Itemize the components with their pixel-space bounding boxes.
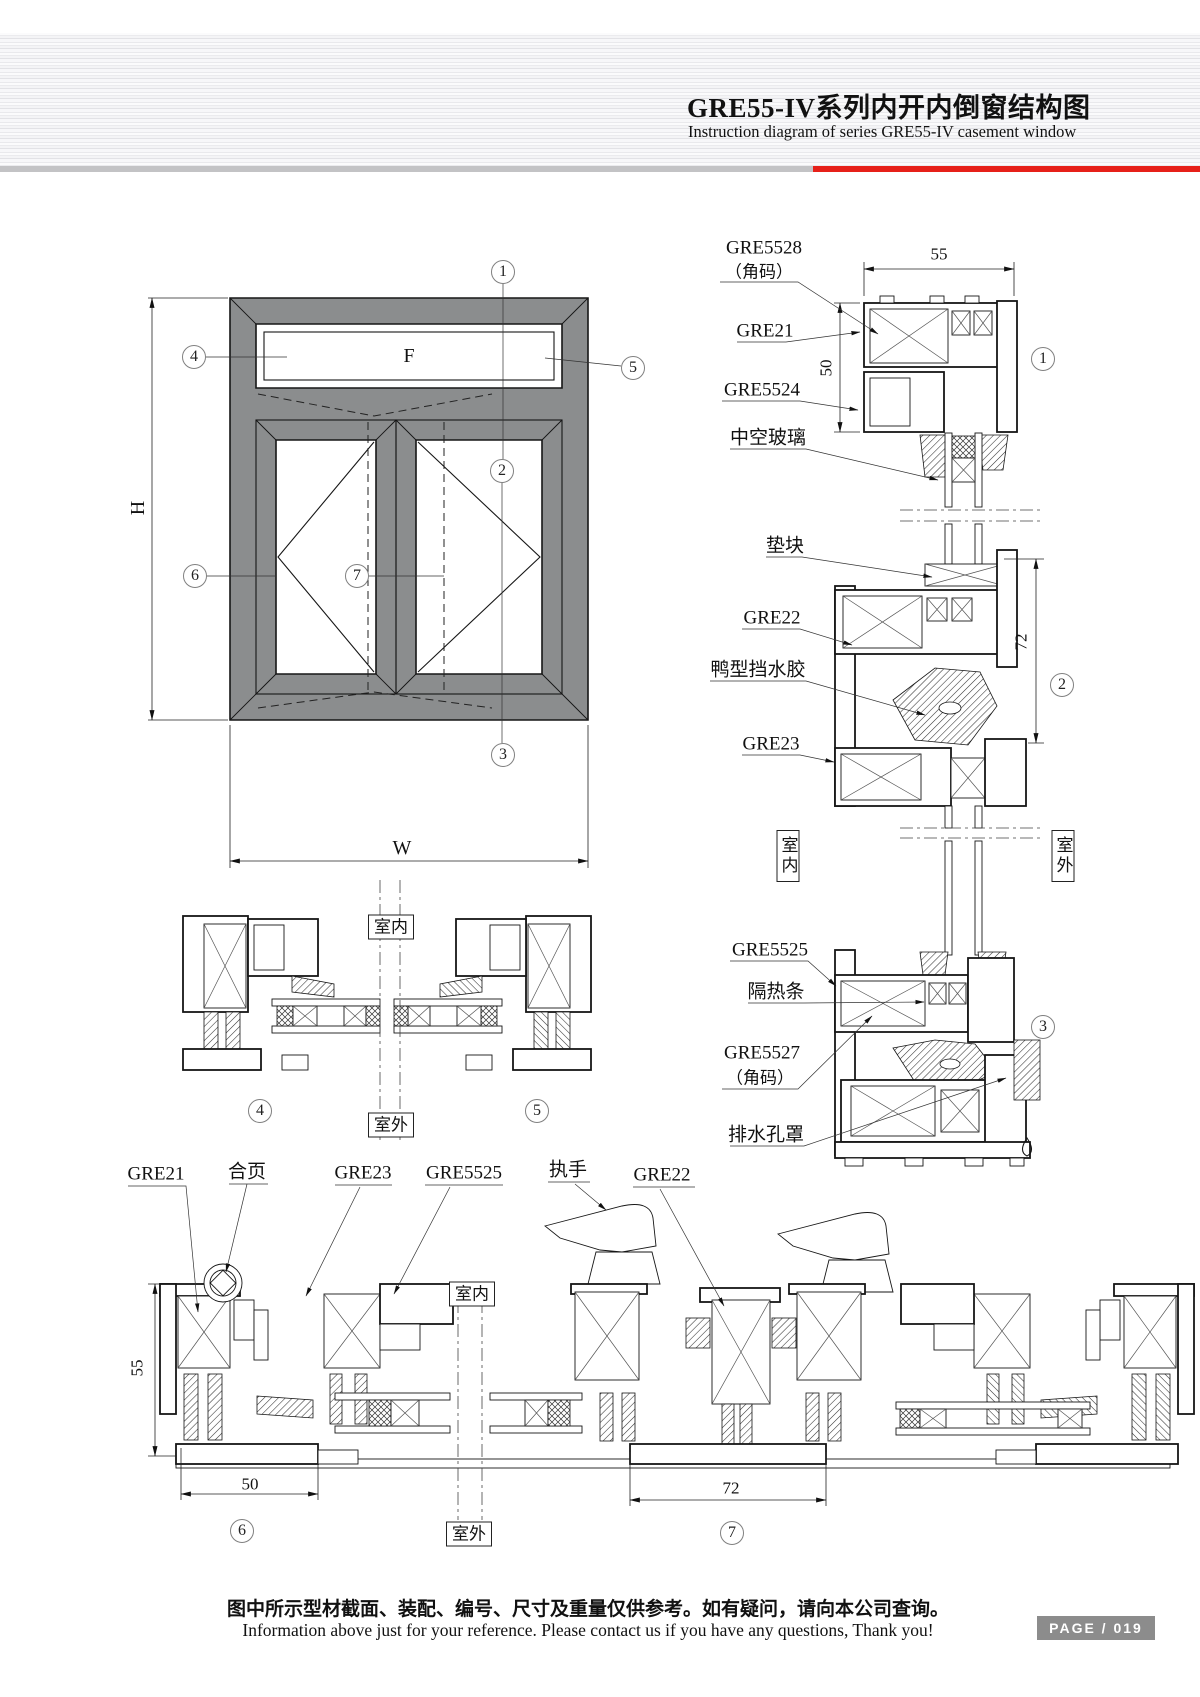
label-hinge: 合页 — [228, 1163, 266, 1182]
label-gre5525-bottom: GRE5525 — [426, 1164, 502, 1183]
callout-7: 7 — [345, 564, 369, 588]
mid-section-left — [183, 916, 380, 1070]
callout-4: 4 — [182, 345, 206, 369]
callout-5: 5 — [621, 356, 645, 380]
section-detail-1 — [834, 262, 1040, 586]
indoor-box-bottom: 室内 — [449, 1282, 495, 1307]
dim-50-bottom: 50 — [242, 1476, 259, 1493]
indoor-box-mid: 室内 — [368, 915, 414, 940]
label-gre21: GRE21 — [737, 322, 794, 341]
bottom-section — [128, 1182, 1194, 1520]
label-gre5525: GRE5525 — [732, 941, 808, 960]
label-setting-block: 垫块 — [766, 537, 804, 556]
callout-1: 1 — [491, 260, 515, 284]
bottom-callout-6: 6 — [230, 1519, 254, 1543]
section-callout-1: 1 — [1031, 347, 1055, 371]
label-gre22-bottom: GRE22 — [634, 1166, 691, 1185]
label-insulating-glass: 中空玻璃 — [730, 429, 806, 448]
mid-callout-5: 5 — [525, 1099, 549, 1123]
label-gre5527-note: （角码） — [726, 1070, 794, 1087]
catalog-page: GRE55-IV系列内开内倒窗结构图 Instruction diagram o… — [0, 0, 1200, 1697]
label-gre5527: GRE5527 — [724, 1044, 800, 1063]
outdoor-box-bottom: 室外 — [446, 1522, 492, 1547]
footer-note-en: Information above just for your referenc… — [138, 1620, 1038, 1641]
dim-72-bottom: 72 — [723, 1480, 740, 1497]
label-gre21-bottom: GRE21 — [128, 1165, 185, 1184]
dim-width-label: W — [393, 838, 412, 858]
label-gre23: GRE23 — [743, 735, 800, 754]
bottom-callout-7: 7 — [720, 1521, 744, 1545]
label-gre5524: GRE5524 — [724, 381, 800, 400]
label-thermal-strip: 隔热条 — [747, 983, 804, 1002]
outdoor-box-right: 室外 — [1052, 830, 1075, 882]
label-drain-cover: 排水孔罩 — [728, 1126, 804, 1145]
footer-note-zh: 图中所示型材截面、装配、编号、尺寸及重量仅供参考。如有疑问，请向本公司查询。 — [138, 1594, 1038, 1621]
callout-2: 2 — [490, 459, 514, 483]
label-water-baffle: 鸭型挡水胶 — [710, 661, 805, 680]
indoor-box-right: 室内 — [777, 830, 800, 882]
window-handle — [545, 1205, 660, 1285]
section-callout-2: 2 — [1050, 673, 1074, 697]
label-gre5528-note: （角码） — [725, 264, 793, 281]
technical-linework — [0, 0, 1200, 1697]
dim-50-left: 50 — [818, 360, 835, 377]
fixed-panel-label: F — [403, 346, 414, 366]
elevation-drawing — [148, 284, 621, 868]
page-badge: PAGE / 019 — [1037, 1616, 1155, 1640]
label-handle: 执手 — [549, 1161, 587, 1180]
callout-3: 3 — [491, 743, 515, 767]
callout-6: 6 — [183, 564, 207, 588]
mid-callout-4: 4 — [248, 1099, 272, 1123]
section-detail-3 — [835, 950, 1040, 1166]
dim-55-bottom: 55 — [129, 1360, 146, 1377]
outdoor-box-mid: 室外 — [368, 1113, 414, 1138]
dim-72-right: 72 — [1013, 634, 1030, 651]
section-callout-3: 3 — [1031, 1015, 1055, 1039]
section-detail-2 — [835, 550, 1044, 955]
dim-55-top: 55 — [931, 246, 948, 263]
label-gre5528: GRE5528 — [726, 239, 802, 258]
label-gre23-bottom: GRE23 — [335, 1164, 392, 1183]
dim-height-label: H — [128, 501, 148, 515]
label-gre22: GRE22 — [744, 609, 801, 628]
